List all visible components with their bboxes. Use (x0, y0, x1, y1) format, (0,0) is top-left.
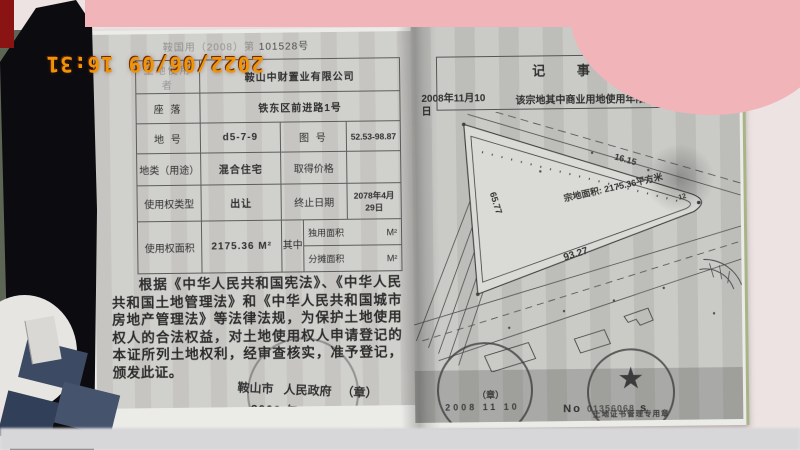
field-parcel-no-value: d5-7-9 (200, 122, 280, 153)
table-surface-strip (0, 428, 800, 450)
issuer-government: 人民政府 (283, 380, 332, 399)
issuer-block: 鞍山市 人民政府 （章） 2008 年 11 月 10 日 (236, 379, 412, 409)
issuer-seal-mark: （章） (341, 383, 378, 401)
star-icon: ★ (589, 364, 673, 395)
certificate-table: 土地使用者 鞍山中财置业有限公司 座 落 铁东区前进路1号 地 号 d5-7-9… (135, 57, 403, 274)
serial-number-line: No 01356068 s (563, 402, 648, 415)
field-shared-area-cell: 分摊面积 M² (304, 245, 402, 272)
field-parcel-no-label: 地 号 (136, 123, 200, 154)
field-shared-area-label: 分摊面积 (308, 252, 344, 265)
field-end-date-label: 终止日期 (281, 183, 347, 220)
seal-date: 2008 11 10 (445, 402, 520, 413)
photo-of-land-certificate: 鞍国用（2008）第 101528号 土地使用者 鞍山中财置业有限公司 座 落 … (0, 0, 800, 450)
field-map-no-label: 图 号 (280, 121, 346, 152)
field-location-value: 铁东区前进路1号 (200, 91, 400, 123)
field-right-type-value: 出让 (201, 184, 281, 221)
photocopy-smudge (644, 143, 715, 214)
field-right-type-label: 使用权类型 (137, 185, 201, 222)
field-price-value (347, 151, 401, 184)
field-exclusive-area-unit: M² (386, 227, 397, 237)
field-map-no-value: 52.53-98.87 (346, 121, 400, 152)
field-end-date-value: 2078年4月29日 (347, 183, 401, 220)
field-location-label: 座 落 (136, 93, 200, 124)
booklet-fold-shadow (397, 27, 442, 429)
field-shared-area-unit: M² (387, 253, 398, 263)
serial-number: 01356068 (587, 403, 635, 414)
certificate-number: 101528号 (259, 41, 310, 53)
field-exclusive-area-label: 独用面积 (308, 226, 344, 239)
field-among-which-label: 其中 (281, 220, 304, 272)
seal-mark: （章） (477, 388, 504, 401)
field-exclusive-area-cell: 独用面积 M² (303, 219, 401, 246)
field-area-value: 2175.36 M² (201, 220, 282, 273)
serial-prefix: No (563, 403, 582, 415)
camera-timestamp: 2022/06/09 16:31 (32, 46, 264, 76)
field-land-type-value: 混合住宅 (201, 152, 281, 185)
issuer-city: 鞍山市 (237, 379, 274, 397)
serial-suffix: s (640, 402, 648, 414)
field-land-type-label: 地类（用途） (137, 153, 201, 186)
certificate-left-page: 鞍国用（2008）第 101528号 土地使用者 鞍山中财置业有限公司 座 落 … (93, 31, 416, 409)
field-area-label: 使用权面积 (137, 221, 202, 274)
red-corner-object (0, 0, 14, 48)
field-price-label: 取得价格 (281, 151, 347, 184)
